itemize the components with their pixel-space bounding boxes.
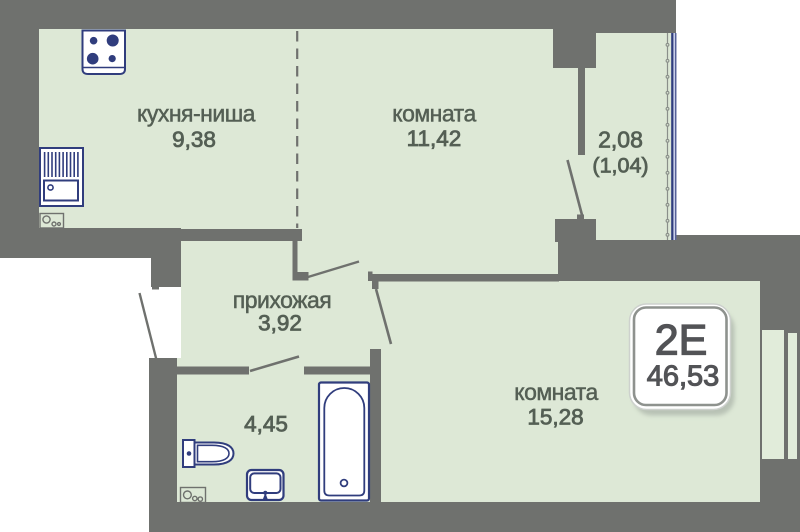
svg-text:2,08: 2,08 bbox=[598, 127, 643, 153]
svg-text:11,42: 11,42 bbox=[407, 126, 462, 151]
svg-text:(1,04): (1,04) bbox=[592, 154, 648, 178]
svg-text:прихожая: прихожая bbox=[233, 287, 332, 313]
svg-text:комната: комната bbox=[514, 379, 598, 405]
svg-text:9,38: 9,38 bbox=[172, 127, 216, 152]
svg-text:4,45: 4,45 bbox=[244, 412, 288, 437]
svg-text:2Е: 2Е bbox=[655, 317, 708, 365]
svg-text:15,28: 15,28 bbox=[527, 405, 583, 430]
svg-text:комната: комната bbox=[392, 101, 476, 127]
svg-text:46,53: 46,53 bbox=[647, 361, 720, 393]
svg-text:кухня-ниша: кухня-ниша bbox=[137, 101, 256, 127]
svg-text:3,92: 3,92 bbox=[258, 311, 302, 336]
